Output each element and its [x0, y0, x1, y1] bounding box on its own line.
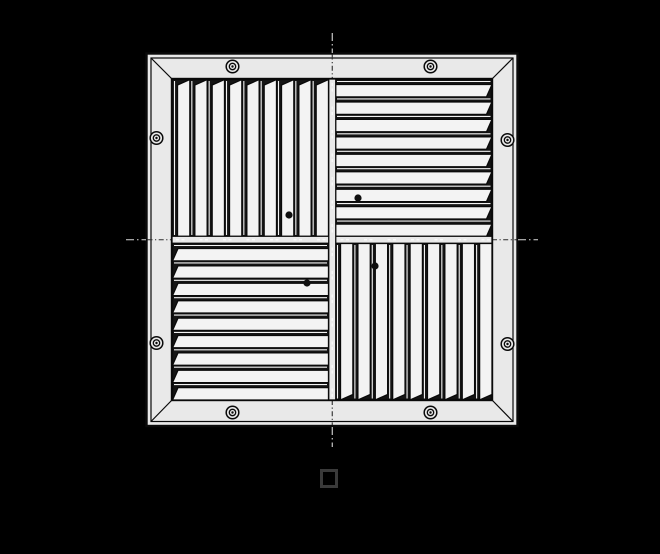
louver-vane	[173, 266, 329, 278]
louver-vane	[173, 301, 329, 313]
screw-icon	[150, 132, 163, 145]
louver-vane	[480, 244, 492, 401]
louver-vane	[173, 370, 329, 382]
missing-glyph-square	[320, 469, 338, 488]
louver-vane	[195, 80, 207, 237]
louver-vane	[173, 318, 329, 330]
louver-vane	[316, 80, 328, 237]
quadrant-top-left	[175, 80, 329, 237]
louver-vane	[341, 244, 353, 401]
louver-vane	[336, 137, 493, 149]
louver-vane	[178, 80, 190, 237]
quadrant-bottom-left	[173, 246, 329, 401]
screw-icon	[501, 134, 514, 147]
louver-vane	[336, 85, 493, 97]
screw-icon	[150, 337, 163, 350]
screw-icon	[424, 60, 437, 73]
louver-vane	[173, 249, 329, 261]
louver-vane	[247, 80, 259, 237]
screw-icon	[226, 406, 239, 419]
quadrant-bottom-right	[338, 244, 493, 401]
louver-vane	[336, 224, 493, 236]
louver-vane	[299, 80, 311, 237]
louver-vane	[336, 207, 493, 219]
screw-icon	[424, 406, 437, 419]
louver-vane	[230, 80, 242, 237]
rivet-dot-bottom-right	[371, 262, 378, 269]
louver-vane	[410, 244, 422, 401]
louver-vane	[462, 244, 474, 401]
louver-vane	[173, 335, 329, 347]
screw-icon	[501, 338, 514, 351]
louver-vane	[445, 244, 457, 401]
rivet-dot-bottom-left	[303, 279, 310, 286]
louver-vane	[173, 388, 329, 400]
quadrant-top-right	[336, 82, 493, 237]
louver-vane	[173, 353, 329, 365]
louver-vane	[336, 172, 493, 184]
louver-vane	[264, 80, 276, 237]
louver-vane	[393, 244, 405, 401]
screw-icon	[226, 60, 239, 73]
louver-vane	[212, 80, 224, 237]
louver-vane	[336, 154, 493, 166]
rivet-dot-top-left	[285, 211, 292, 218]
louver-vane	[336, 102, 493, 114]
louver-vane	[358, 244, 370, 401]
rivet-dot-top-right	[354, 194, 361, 201]
louver-vane	[336, 119, 493, 131]
vertical-divider-band	[329, 79, 336, 400]
louver-vane	[427, 244, 439, 401]
